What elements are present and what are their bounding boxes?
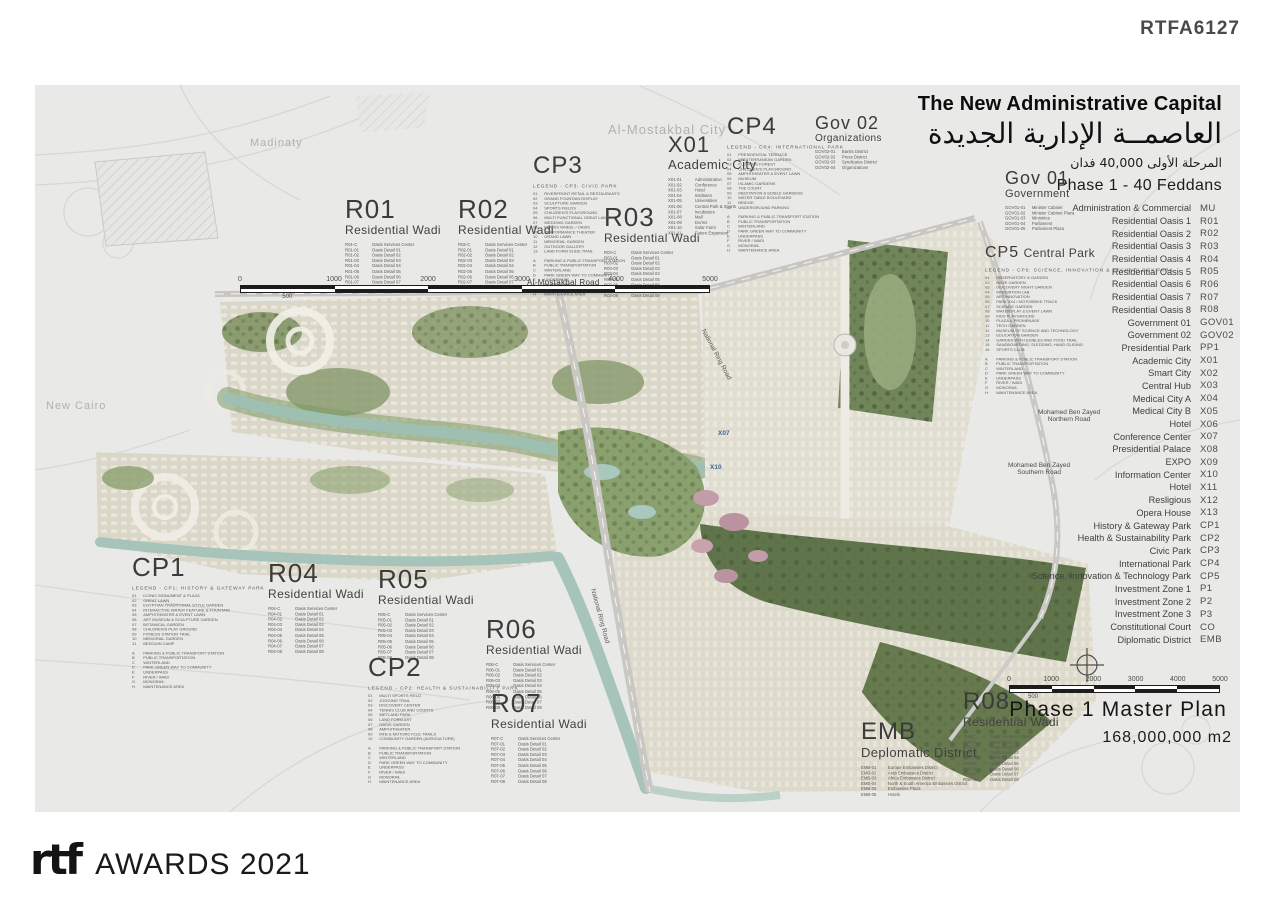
key-legend-name: Constitutional Court: [990, 622, 1200, 632]
key-legend-code: P3: [1200, 609, 1242, 620]
scale-bar-body: [240, 285, 710, 293]
park-item-name: MAINTENANCE AREA: [143, 685, 184, 690]
park-subtitle: Central Park: [1024, 246, 1096, 260]
park-common-items: APARKING & PUBLIC TRANSPORT STATIONBPUBL…: [727, 215, 917, 254]
park-item-name: BEDOUIN CAMP: [143, 642, 174, 647]
park-code: CP2: [368, 654, 708, 680]
scale-tick: 4000: [608, 276, 624, 283]
mini-code: EMB-06: [861, 792, 888, 797]
key-legend-name: Opera House: [990, 508, 1200, 518]
page-title: The New Administrative Capital: [918, 93, 1222, 116]
mini-name: Hotels: [888, 792, 900, 797]
key-legend-row: Investment Zone 3 P3: [990, 608, 1242, 621]
park-code: CP5: [985, 244, 1019, 261]
park-cp2: CP2 LEGEND - CP2: HEALTH & SUSTAINABILIT…: [368, 654, 708, 863]
park-item-code: H: [985, 391, 996, 396]
key-legend-code: CP1: [1200, 520, 1242, 531]
key-legend-row: International Park CP4: [990, 557, 1242, 570]
map-code-x07: X07: [718, 430, 730, 437]
park-legend: LEGEND - CP4: INTERNATIONAL PARK 01PRESI…: [727, 144, 917, 253]
district-subtitle: Deplomatic District: [861, 745, 1201, 760]
park-item-code: 13: [533, 249, 544, 254]
master-plan-area: 168,000,000 m2: [1102, 729, 1232, 747]
park-items: 01OBSERVATORY & GARDEN02MAZE GARDEN03DIS…: [985, 275, 1175, 352]
key-legend-row: Civic Park CP3: [990, 545, 1242, 558]
scale-tick: 2000: [420, 276, 436, 283]
scale-bar-bottom: 0 1000 2000 3000 4000 5000 500: [1009, 676, 1220, 693]
scale-bar-top: 0 1000 2000 3000 4000 5000 500: [240, 276, 710, 293]
context-label-new-cairo: New Cairo: [46, 400, 106, 412]
scale-tick: 5000: [1212, 676, 1228, 683]
reference-code: RTFA6127: [1140, 18, 1240, 40]
key-legend-code: CP4: [1200, 558, 1242, 569]
key-legend-name: Resligious: [990, 495, 1200, 505]
park-items: 01MULTI SPORTS FIELD02JOGGING TRAIL03DIS…: [368, 693, 558, 741]
key-legend-name: Investment Zone 1: [990, 584, 1200, 594]
park-item-code: 10: [368, 737, 379, 742]
park-item-name: SPORTS CLUB: [996, 348, 1024, 353]
key-legend-name: Health & Sustainability Park: [990, 533, 1200, 543]
park-common-items: APARKING & PUBLIC TRANSPORT STATIONBPUBL…: [985, 357, 1175, 396]
park-legend-row: HMAINTENANCE AREA: [727, 248, 917, 253]
key-legend-code: CP5: [1200, 571, 1242, 582]
context-label-madinaty: Madinaty: [250, 137, 303, 149]
scale-tick: 4000: [1170, 676, 1186, 683]
park-item-name: LAND FORM SLIDE TRAIL: [544, 249, 593, 254]
park-item-name: MAINTENANCE AREA: [996, 391, 1037, 396]
key-legend-name: Science, Innovation & Technology Park: [990, 571, 1200, 581]
park-item-code: 16: [985, 348, 996, 353]
park-item-code: H: [132, 685, 143, 690]
scale-bar-body: [1009, 685, 1220, 693]
park-legend-header: LEGEND - CP2: HEALTH & SUSTAINABILITY PA…: [368, 685, 558, 691]
presentation-board: RTFA6127 The New Administrative Capital …: [0, 0, 1273, 900]
scale-tick: 3000: [514, 276, 530, 283]
key-legend-row: Investment Zone 1 P1: [990, 583, 1242, 596]
park-item-name: MAINTENANCE AREA: [738, 248, 779, 253]
scale-tick: 5000: [702, 276, 718, 283]
scale-tick: 2000: [1086, 676, 1102, 683]
park-title-line: CP5 Central Park: [985, 244, 1273, 262]
park-item-code: 12: [727, 205, 738, 210]
key-legend-name: Diplomatic District: [990, 635, 1200, 645]
park-item-name: COMMUNITY GARDEN (AGRICULTURE): [379, 737, 454, 742]
key-legend-row: Investment Zone 2 P2: [990, 595, 1242, 608]
rtf-awards-logo: rtf AWARDS 2021: [30, 839, 311, 882]
key-legend-row: Constitutional Court CO: [990, 621, 1242, 634]
park-legend-header: LEGEND - CP4: INTERNATIONAL PARK: [727, 144, 917, 150]
park-item-code: H: [727, 248, 738, 253]
key-legend-code: CP3: [1200, 545, 1242, 556]
park-items: 01RIVERFRONT RETAIL & RESTAURANTS02GRAND…: [533, 191, 723, 254]
park-legend: LEGEND - CP2: HEALTH & SUSTAINABILITY PA…: [368, 685, 558, 785]
map-code-x10: X10: [710, 464, 722, 471]
park-common-items: APARKING & PUBLIC TRANSPORT STATIONBPUBL…: [132, 651, 322, 690]
key-legend-code: X13: [1200, 507, 1242, 518]
park-legend-row: HMAINTENANCE AREA: [985, 391, 1175, 396]
key-legend-code: CO: [1200, 622, 1242, 633]
park-legend-header: LEGEND - CP3: CIVIC PARK: [533, 183, 723, 189]
park-legend-row: HMAINTENANCE AREA: [368, 780, 558, 785]
key-legend-code: CP2: [1200, 533, 1242, 544]
park-legend-row: HMAINTENANCE AREA: [132, 685, 322, 690]
key-legend-row: Health & Sustainability Park CP2: [990, 532, 1242, 545]
park-item-code: H: [368, 780, 379, 785]
key-legend-code: X12: [1200, 495, 1242, 506]
park-item-name: UNDERGROUND PARKING: [738, 205, 789, 210]
key-legend-row: Diplomatic District EMB: [990, 633, 1242, 646]
park-items: 01ICONIC MONUMENT & PLAZA02GREAT LAWN03E…: [132, 593, 322, 646]
park-code: CP4: [727, 115, 1067, 139]
key-legend-code: P1: [1200, 583, 1242, 594]
awards-label: AWARDS 2021: [95, 848, 311, 882]
district-code: R06: [486, 616, 826, 642]
scale-ticks: 0 1000 2000 3000 4000 5000: [1009, 676, 1220, 685]
park-common-items: APARKING & PUBLIC TRANSPORT STATIONBPUBL…: [368, 746, 558, 785]
mini-legend-row: EMB-06Hotels: [861, 792, 1051, 797]
scale-tick: 0: [1007, 676, 1011, 683]
park-items: 01PRESIDENTIAL TERRACE02MEDITERRANEAN GA…: [727, 152, 917, 210]
park-legend: LEGEND - CP5: SCIENCE, INNOVATION & TECH…: [985, 267, 1175, 395]
park-cp5: CP5 Central Park LEGEND - CP5: SCIENCE, …: [985, 244, 1273, 496]
park-code: CP1: [132, 554, 472, 580]
key-legend-row: Opera House X13: [990, 507, 1242, 520]
scale-minor-tick: 500: [282, 294, 292, 300]
key-legend-name: Investment Zone 2: [990, 597, 1200, 607]
key-legend-row: Science, Innovation & Technology Park CP…: [990, 570, 1242, 583]
key-legend-name: Civic Park: [990, 546, 1200, 556]
park-item-code: 11: [132, 642, 143, 647]
scale-tick: 1000: [326, 276, 342, 283]
scale-tick: 0: [238, 276, 242, 283]
park-legend-header: LEGEND - CP1: HISTORY & GATEWAY PARK: [132, 585, 322, 591]
scale-ticks: 0 1000 2000 3000 4000 5000: [240, 276, 710, 285]
park-item-name: MAINTENANCE AREA: [379, 780, 420, 785]
key-legend-row: History & Gateway Park CP1: [990, 519, 1242, 532]
key-legend-code: EMB: [1200, 634, 1242, 645]
scale-tick: 1000: [1043, 676, 1059, 683]
scale-tick: 3000: [1128, 676, 1144, 683]
district-mini-legend: EMB-01Europe Embassies DistrictEMB-02Ara…: [861, 765, 1051, 797]
master-plan-title: Phase 1 Master Plan: [1009, 698, 1227, 722]
rtf-logo-mark: rtf: [30, 839, 80, 881]
key-legend-name: Investment Zone 3: [990, 609, 1200, 619]
park-legend-header: LEGEND - CP5: SCIENCE, INNOVATION & TECH…: [985, 267, 1175, 273]
park-legend: LEGEND - CP1: HISTORY & GATEWAY PARK 01I…: [132, 585, 322, 689]
key-legend-code: P2: [1200, 596, 1242, 607]
key-legend-name: History & Gateway Park: [990, 521, 1200, 531]
key-legend-name: International Park: [990, 559, 1200, 569]
